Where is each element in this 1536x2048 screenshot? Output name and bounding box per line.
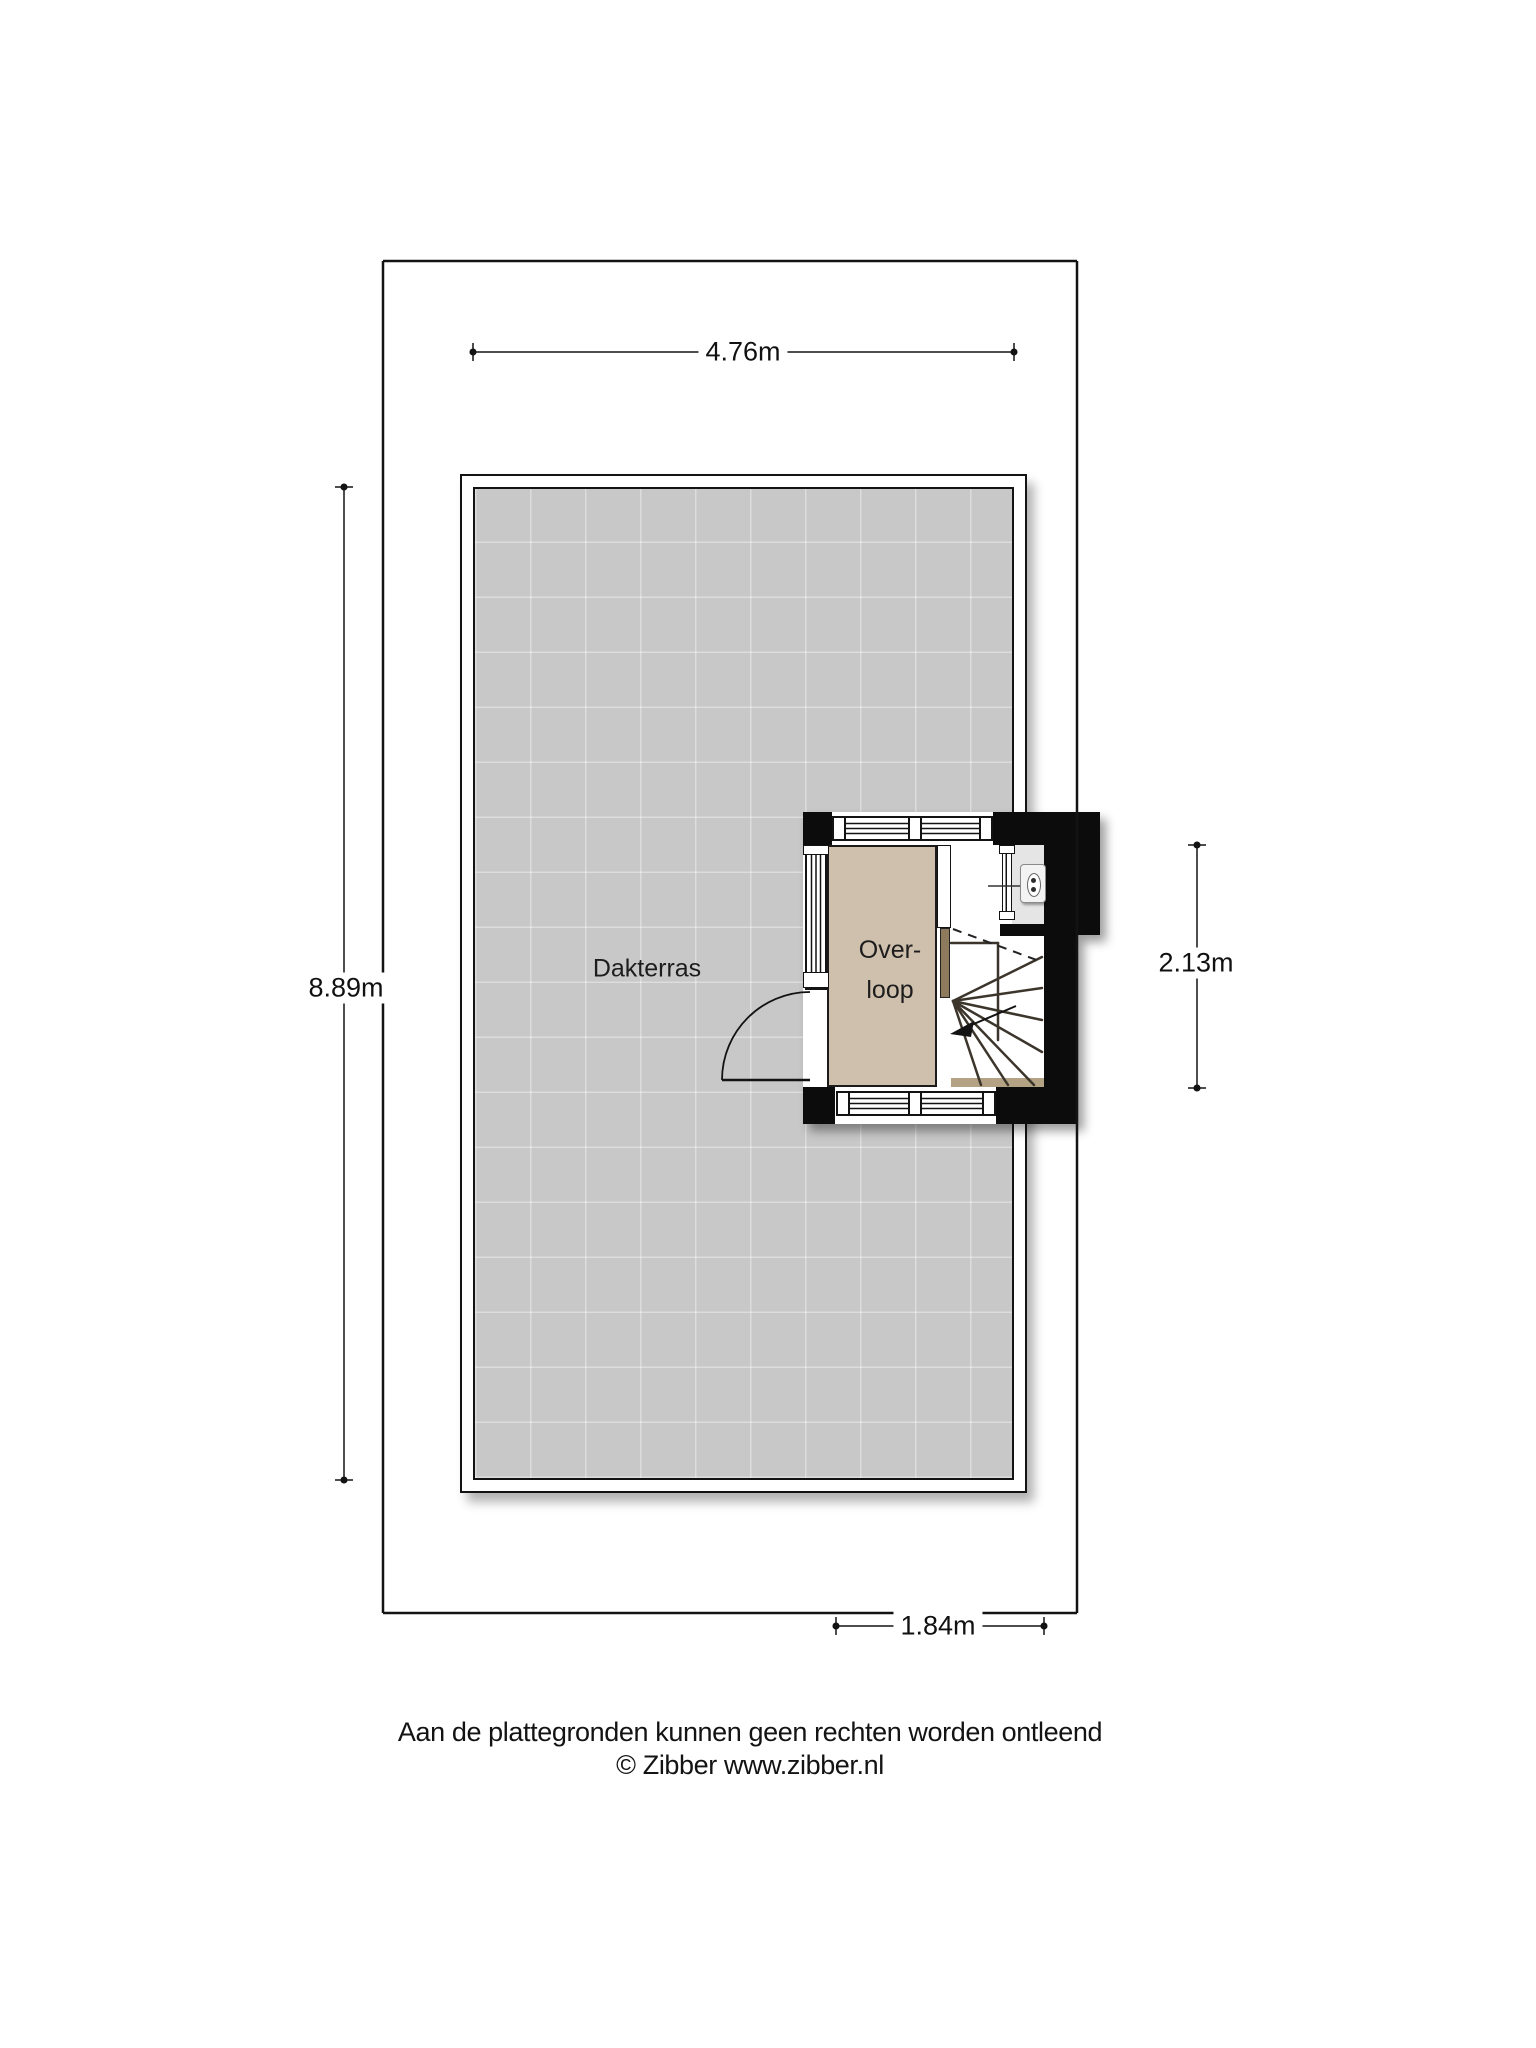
wall-corner-bottom-left [803,1087,835,1124]
wall-tech-bottom [1000,924,1044,936]
dimension-label-top: 4.76m [698,337,787,368]
overloop-label: Over- loop [859,930,922,1010]
window-cap [999,845,1015,854]
dimension-label-right: 2.13m [1151,948,1240,979]
wall-corner-top-left [803,812,832,845]
wall-right-upper [1044,845,1100,935]
door-panel [940,928,950,998]
door-jamb [803,972,829,988]
overloop-label-line1: Over- [859,930,922,970]
footer-copyright: © Zibber www.zibber.nl [0,1749,1500,1782]
wall-unit-dot [1031,878,1036,883]
floorplan-page: 4.76m 8.89m 2.13m 1.84m Dakterras Over- … [0,0,1536,2048]
wall-top-right [993,812,1100,845]
window-post [979,816,993,841]
overloop-label-line2: loop [859,970,922,1010]
wall-unit-icon [1020,864,1046,903]
footer: Aan de plattegronden kunnen geen rechten… [0,1716,1500,1782]
dimension-label-bottom: 1.84m [893,1611,982,1642]
window-post [908,1091,922,1116]
window-cap [803,845,829,855]
stair-lowest-tread [951,1078,1044,1087]
stairwell-structure [803,812,1100,1124]
wall-corner-bottom-right [996,1087,1078,1124]
wall-unit-oval [1027,873,1041,897]
tech-room-window [1002,850,1012,914]
wall-unit-dot [1031,887,1036,892]
footer-disclaimer: Aan de plattegronden kunnen geen rechten… [0,1716,1500,1749]
window-left [805,845,827,990]
partition-wall [937,845,951,928]
window-cap [999,911,1015,920]
window-post [836,1091,850,1116]
window-post [982,1091,996,1116]
window-post [908,816,922,841]
dimension-label-left: 8.89m [301,973,390,1004]
dakterras-label: Dakterras [593,955,701,984]
window-post [832,816,846,841]
